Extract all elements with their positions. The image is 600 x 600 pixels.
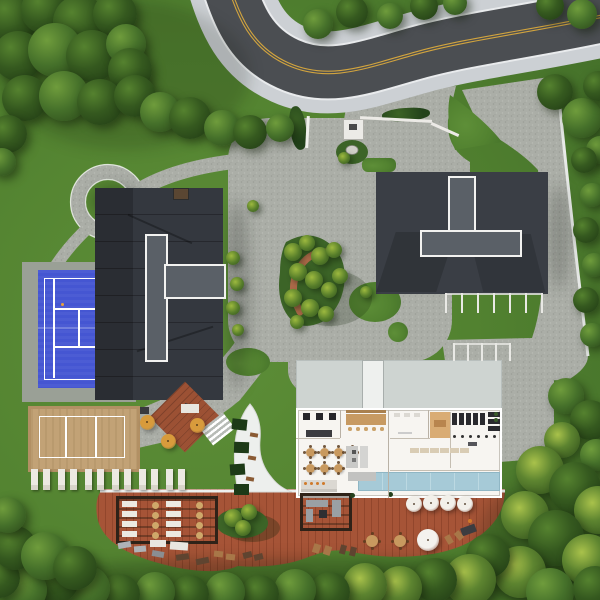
tree	[284, 289, 302, 307]
tree	[567, 0, 597, 29]
tree	[241, 504, 257, 520]
tree	[171, 575, 209, 600]
tree	[580, 323, 600, 347]
trees-layer	[0, 0, 600, 600]
tree	[318, 306, 334, 322]
tree	[562, 98, 600, 138]
tree	[247, 200, 259, 212]
tree	[0, 148, 16, 176]
tree	[582, 253, 600, 277]
tree	[226, 251, 240, 265]
tree	[241, 575, 279, 600]
tree	[583, 71, 600, 101]
tree	[321, 282, 337, 298]
tree	[290, 315, 304, 329]
tree	[274, 569, 316, 600]
tree	[230, 277, 244, 291]
tree	[232, 324, 244, 336]
tree	[233, 115, 267, 149]
tree	[336, 0, 368, 28]
tree	[571, 147, 597, 173]
tree	[303, 9, 333, 39]
tree	[573, 287, 599, 313]
tree	[299, 235, 315, 251]
tree	[332, 268, 348, 284]
tree	[443, 0, 467, 15]
tree	[205, 572, 245, 600]
site-plan-render	[0, 0, 600, 600]
tree	[301, 299, 319, 317]
tree	[536, 0, 564, 20]
tree	[235, 520, 251, 536]
tree	[377, 3, 403, 29]
tree	[338, 152, 350, 164]
tree	[305, 271, 323, 289]
tree	[226, 301, 240, 315]
tree	[53, 546, 97, 590]
tree	[326, 242, 342, 258]
tree	[580, 183, 600, 207]
tree	[360, 286, 372, 298]
tree	[266, 114, 294, 142]
tree	[410, 0, 438, 20]
tree	[135, 572, 175, 600]
tree	[573, 217, 599, 243]
